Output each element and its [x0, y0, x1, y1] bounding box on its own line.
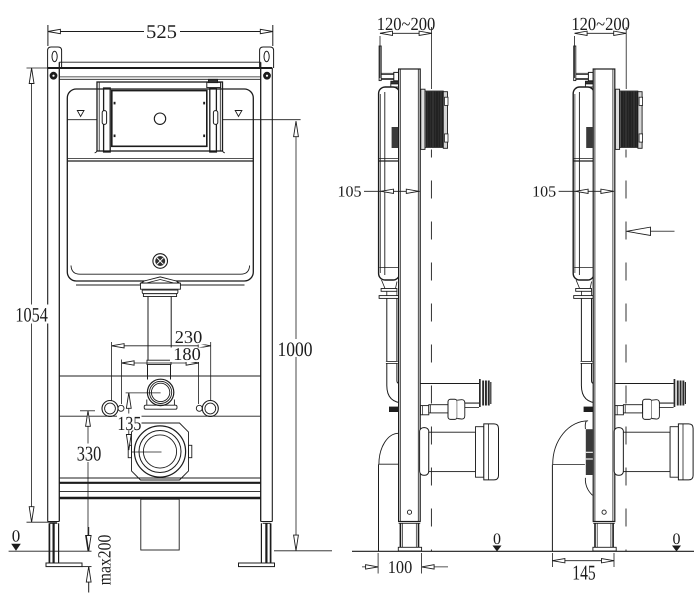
- svg-text:1054: 1054: [15, 304, 48, 326]
- svg-text:105: 105: [338, 183, 362, 200]
- svg-text:120~200: 120~200: [377, 15, 436, 35]
- svg-text:525: 525: [146, 22, 177, 43]
- svg-text:max200: max200: [96, 535, 116, 586]
- svg-text:330: 330: [77, 441, 102, 465]
- svg-text:1000: 1000: [278, 339, 313, 361]
- svg-text:0: 0: [12, 527, 21, 546]
- svg-text:100: 100: [388, 557, 413, 577]
- svg-text:135: 135: [117, 413, 141, 435]
- svg-text:0: 0: [493, 531, 501, 548]
- svg-text:180: 180: [173, 344, 201, 364]
- svg-text:0: 0: [673, 531, 681, 548]
- svg-text:145: 145: [572, 561, 596, 585]
